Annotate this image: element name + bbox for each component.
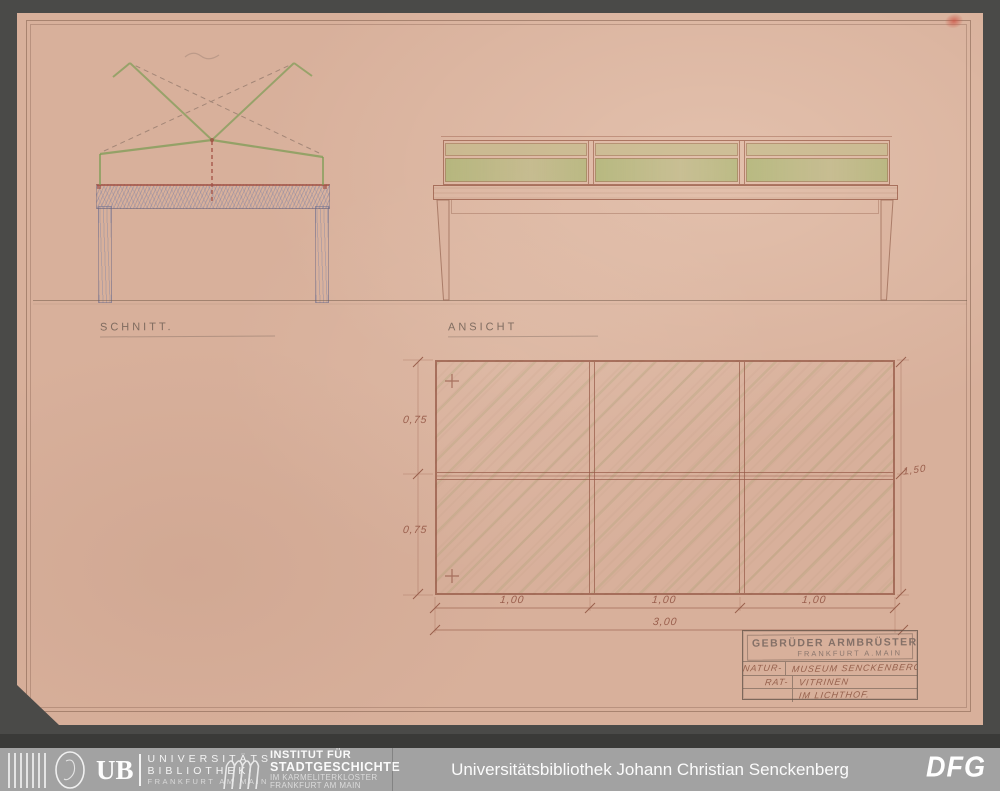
section-right-leg: [315, 206, 329, 303]
elevation-apron: [451, 200, 879, 214]
title-row-left: RAT-: [765, 677, 790, 687]
ub-abbr: UB: [96, 757, 134, 784]
institut-logo: INSTITUT FÜR STADTGESCHICHTE IM KARMELIT…: [222, 750, 400, 790]
ub-logo-icon: [6, 751, 94, 789]
elevation-top-rail: [441, 136, 892, 139]
dim-total-width: 3,00: [630, 616, 700, 628]
title-row-right: IM LICHTHOF.: [798, 690, 870, 701]
portrait-face-icon: [64, 760, 75, 780]
title-row-right: MUSEUM SENCKENBERG.: [792, 662, 917, 674]
footer-shadow-strip: [0, 734, 1000, 748]
footer-separator: [392, 748, 393, 791]
title-row-right: VITRINEN: [798, 676, 849, 687]
ub-divider: [139, 754, 141, 786]
dim-height-top: 0,75: [403, 414, 427, 426]
karmeliterkloster-arches-icon: [220, 751, 264, 790]
title-row: IM LICHTHOF.: [743, 688, 917, 702]
section-label: SCHNITT.: [100, 321, 275, 338]
library-name: Universitätsbibliothek Johann Christian …: [400, 748, 900, 791]
section-tabletop: [96, 184, 330, 209]
glass-bay: [594, 141, 738, 184]
portrait-oval-icon: [56, 752, 84, 788]
elevation-tabletop: [433, 185, 898, 200]
elevation-glass-case: [443, 140, 890, 185]
title-row: RAT- VITRINEN: [743, 675, 917, 689]
dim-bay-1: 1,00: [477, 594, 547, 606]
title-block: GEBRÜDER ARMBRÜSTER FRANKFURT A.MAIN NAT…: [742, 630, 918, 700]
scan-viewer: SCHNITT. ANSICHT 0,75 0,75 1,00 1,00 1,0…: [0, 0, 1000, 791]
glass-bay: [745, 141, 889, 184]
dim-height-bottom: 0,75: [403, 524, 427, 536]
title-row: NATUR- MUSEUM SENCKENBERG.: [743, 661, 917, 675]
dim-bay-3: 1,00: [779, 594, 849, 606]
firm-stamp: GEBRÜDER ARMBRÜSTER FRANKFURT A.MAIN: [747, 633, 913, 660]
plan-middle-rail: [437, 472, 893, 480]
footer-bar: UB UNIVERSITÄTS BIBLIOTHEK FRANKFURT AM …: [0, 748, 1000, 791]
drawing-sheet: SCHNITT. ANSICHT 0,75 0,75 1,00 1,00 1,0…: [17, 13, 983, 725]
glass-bay: [444, 141, 588, 184]
section-left-leg: [98, 206, 112, 303]
dim-bay-2: 1,00: [629, 594, 699, 606]
plan-grid: [435, 360, 895, 595]
institut-line-4: FRANKFURT AM MAIN: [270, 782, 400, 790]
firm-city: FRANKFURT A.MAIN: [752, 648, 908, 658]
title-row-left: NATUR-: [743, 663, 783, 674]
elevation-label: ANSICHT: [448, 321, 598, 338]
dfg-logo: DFG: [926, 751, 986, 784]
